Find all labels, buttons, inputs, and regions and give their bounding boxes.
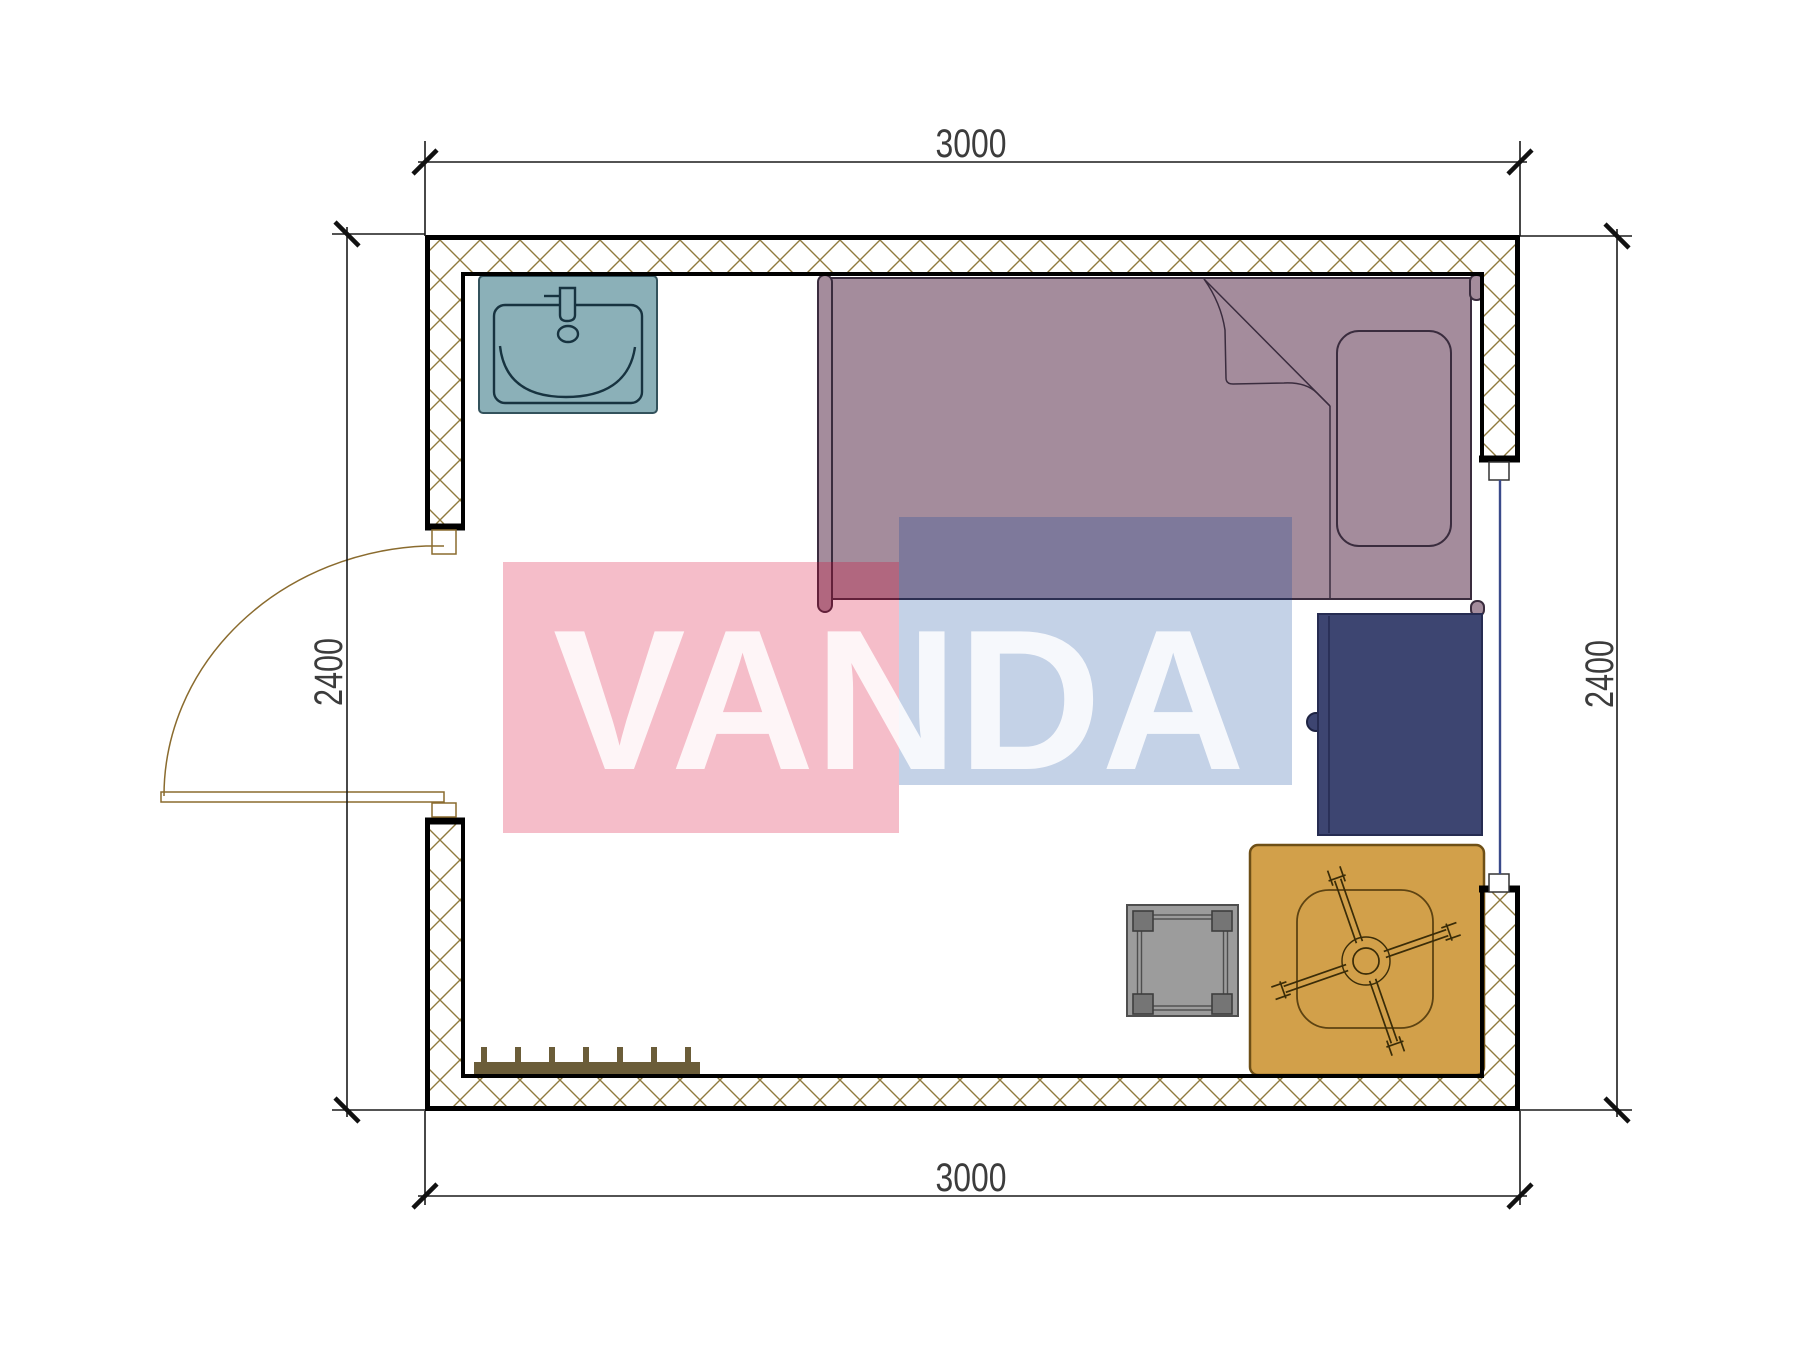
svg-text:VANDA: VANDA <box>553 589 1245 812</box>
svg-text:3000: 3000 <box>936 122 1007 166</box>
svg-text:2400: 2400 <box>1578 640 1622 708</box>
svg-text:3000: 3000 <box>936 1156 1007 1200</box>
svg-text:2400: 2400 <box>307 638 351 706</box>
